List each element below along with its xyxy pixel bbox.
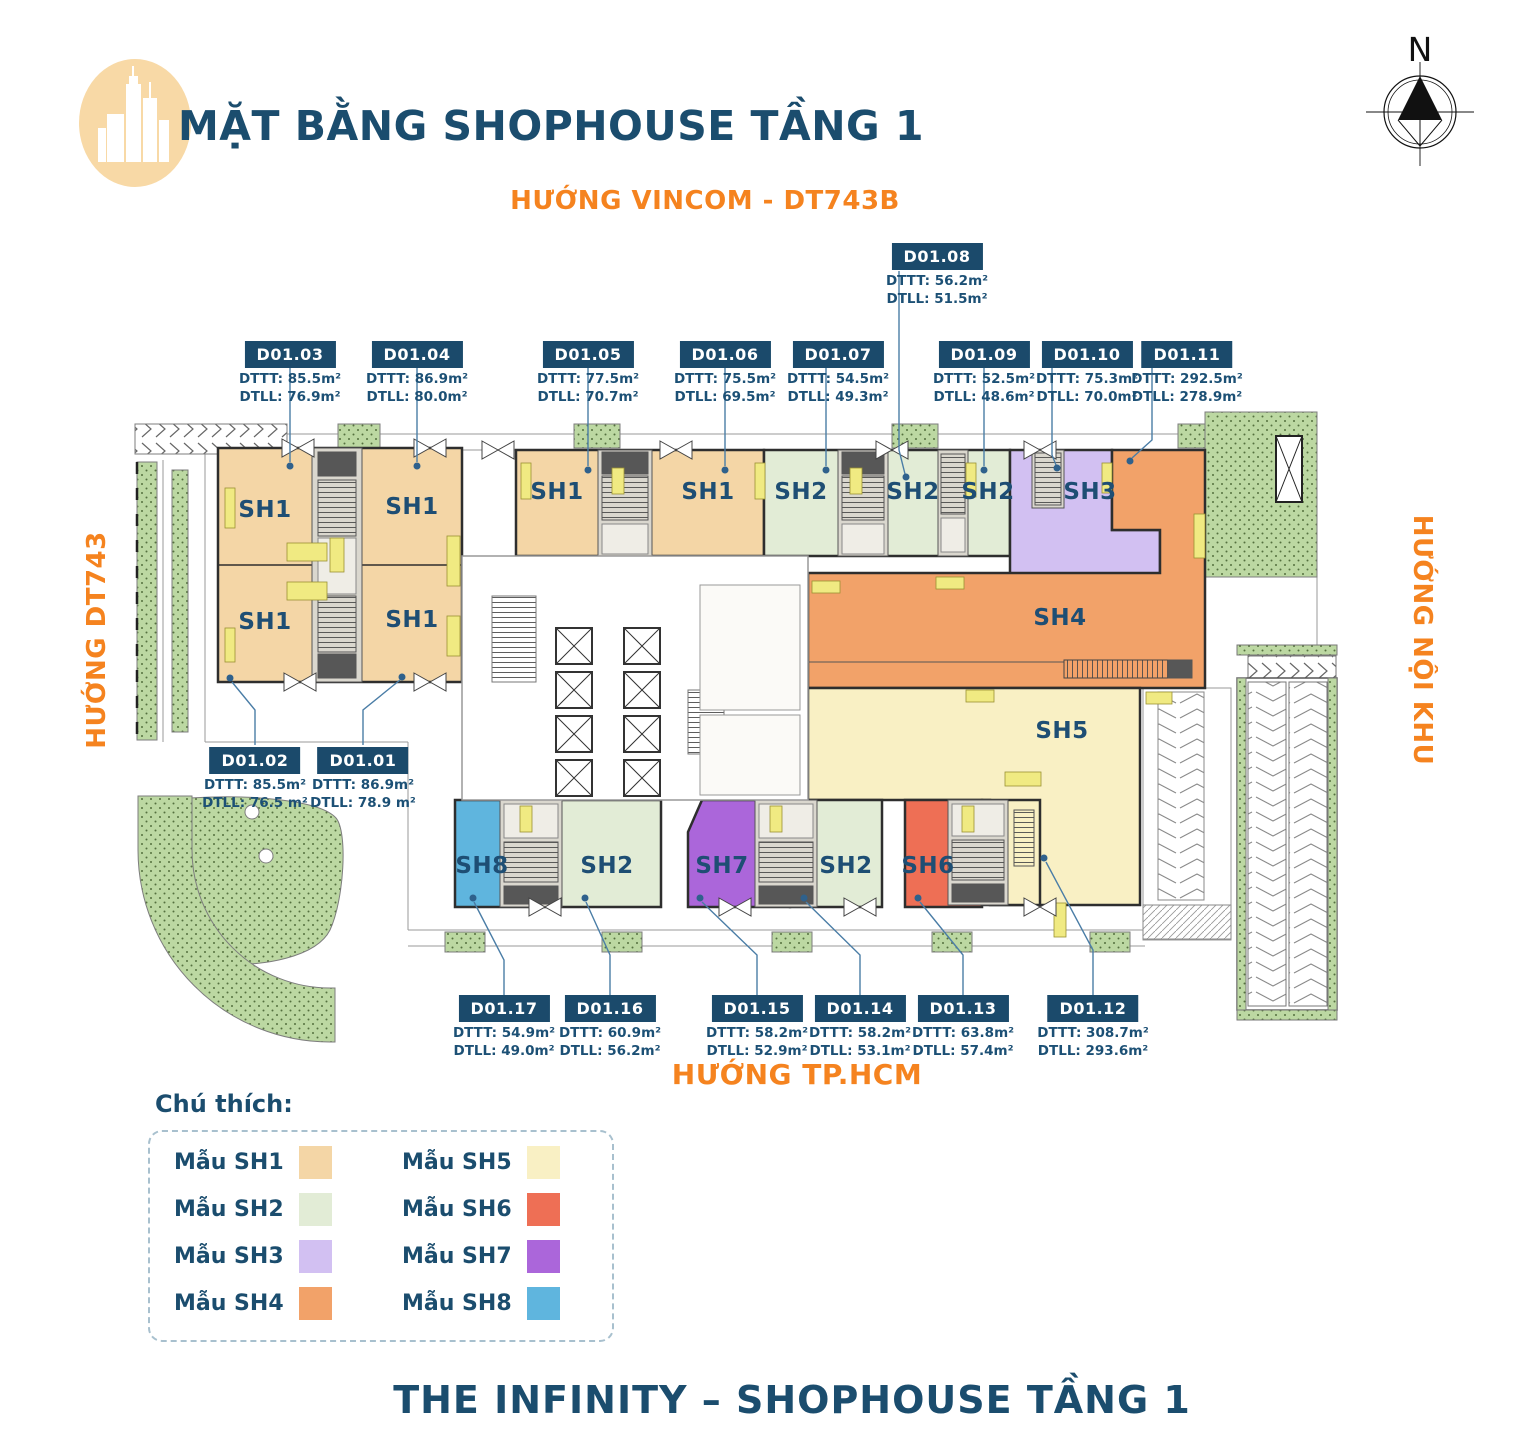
central-core xyxy=(462,556,808,800)
unit-areas: DTTT: 85.5m²DTLL: 76.9m² xyxy=(239,371,341,406)
unit-id-badge: D01.05 xyxy=(543,341,634,368)
plan-label-sh3: SH3 xyxy=(1063,479,1116,505)
unit-areas: DTTT: 56.2m²DTLL: 51.5m² xyxy=(886,273,988,308)
plan-label-sh8: SH8 xyxy=(455,853,508,879)
unit-tag-d01-07: D01.07 DTTT: 54.5m²DTLL: 49.3m² xyxy=(787,341,889,406)
unit-areas: DTTT: 86.9m²DTLL: 78.9 m² xyxy=(310,777,416,812)
legend-swatch-sh7 xyxy=(527,1240,560,1273)
legend-title: Chú thích: xyxy=(155,1090,293,1118)
compass-north-label: N xyxy=(1408,30,1433,69)
unit-tag-d01-10: D01.10 DTTT: 75.3m²DTLL: 70.0m² xyxy=(1036,341,1138,406)
logo-icon xyxy=(79,59,191,187)
plan-label-sh2: SH2 xyxy=(886,479,939,505)
plan-label-sh1: SH1 xyxy=(385,494,438,520)
unit-id-badge: D01.09 xyxy=(939,341,1030,368)
unit-id-badge: D01.14 xyxy=(815,995,906,1022)
unit-tag-d01-16: D01.16 DTTT: 60.9m²DTLL: 56.2m² xyxy=(559,995,661,1060)
plan-label-sh1: SH1 xyxy=(385,607,438,633)
unit-tag-d01-15: D01.15 DTTT: 58.2m²DTLL: 52.9m² xyxy=(706,995,808,1060)
unit-id-badge: D01.06 xyxy=(680,341,771,368)
unit-tag-d01-12: D01.12 DTTT: 308.7m²DTLL: 293.6m² xyxy=(1037,995,1149,1060)
legend-item-sh3: Mẫu SH3 xyxy=(174,1240,332,1273)
unit-id-badge: D01.03 xyxy=(245,341,336,368)
direction-label-left: HƯỚNG DT743 xyxy=(82,531,112,748)
legend-swatch-sh4 xyxy=(299,1287,332,1320)
legend-swatch-sh2 xyxy=(299,1193,332,1226)
unit-id-badge: D01.13 xyxy=(918,995,1009,1022)
unit-id-badge: D01.17 xyxy=(459,995,550,1022)
unit-id-badge: D01.10 xyxy=(1042,341,1133,368)
unit-tag-d01-13: D01.13 DTTT: 63.8m²DTLL: 57.4m² xyxy=(912,995,1014,1060)
unit-areas: DTTT: 63.8m²DTLL: 57.4m² xyxy=(912,1025,1014,1060)
unit-id-badge: D01.15 xyxy=(712,995,803,1022)
legend-item-sh2: Mẫu SH2 xyxy=(174,1193,332,1226)
unit-areas: DTTT: 86.9m²DTLL: 80.0m² xyxy=(366,371,468,406)
unit-areas: DTTT: 60.9m²DTLL: 56.2m² xyxy=(559,1025,661,1060)
unit-tag-d01-02: D01.02 DTTT: 85.5m²DTLL: 76.5 m² xyxy=(202,747,308,812)
unit-areas: DTTT: 58.2m²DTLL: 53.1m² xyxy=(809,1025,911,1060)
unit-tag-d01-11: D01.11 DTTT: 292.5m²DTLL: 278.9m² xyxy=(1131,341,1243,406)
legend-swatch-sh5 xyxy=(527,1146,560,1179)
unit-areas: DTTT: 308.7m²DTLL: 293.6m² xyxy=(1037,1025,1149,1060)
unit-id-badge: D01.11 xyxy=(1142,341,1233,368)
unit-areas: DTTT: 54.9m²DTLL: 49.0m² xyxy=(453,1025,555,1060)
legend-item-sh5: Mẫu SH5 xyxy=(402,1146,560,1179)
footer-title: THE INFINITY – SHOPHOUSE TẦNG 1 xyxy=(393,1378,1191,1422)
legend-item-sh8: Mẫu SH8 xyxy=(402,1287,560,1320)
unit-areas: DTTT: 77.5m²DTLL: 70.7m² xyxy=(537,371,639,406)
page-title: MẶT BẰNG SHOPHOUSE TẦNG 1 xyxy=(178,102,924,150)
unit-id-badge: D01.04 xyxy=(372,341,463,368)
plan-label-sh4: SH4 xyxy=(1033,605,1086,631)
unit-areas: DTTT: 52.5m²DTLL: 48.6m² xyxy=(933,371,1035,406)
direction-label-bottom: HƯỚNG TP.HCM xyxy=(672,1058,922,1091)
compass-icon xyxy=(1366,62,1474,166)
plan-label-sh1: SH1 xyxy=(238,609,291,635)
unit-areas: DTTT: 58.2m²DTLL: 52.9m² xyxy=(706,1025,808,1060)
plan-label-sh2: SH2 xyxy=(580,853,633,879)
legend-swatch-sh3 xyxy=(299,1240,332,1273)
legend-swatch-sh1 xyxy=(299,1146,332,1179)
plan-label-sh6: SH6 xyxy=(901,853,954,879)
plan-label-sh2: SH2 xyxy=(774,479,827,505)
unit-tag-d01-09: D01.09 DTTT: 52.5m²DTLL: 48.6m² xyxy=(933,341,1035,406)
unit-id-badge: D01.01 xyxy=(318,747,409,774)
unit-id-badge: D01.07 xyxy=(793,341,884,368)
plan-label-sh7: SH7 xyxy=(695,853,748,879)
legend-item-sh6: Mẫu SH6 xyxy=(402,1193,560,1226)
direction-label-top: HƯỚNG VINCOM - DT743B xyxy=(510,186,900,216)
legend-swatch-sh8 xyxy=(527,1287,560,1320)
plan-label-sh1: SH1 xyxy=(530,479,583,505)
unit-tag-d01-06: D01.06 DTTT: 75.5m²DTLL: 69.5m² xyxy=(674,341,776,406)
plan-label-sh1: SH1 xyxy=(238,497,291,523)
unit-id-badge: D01.02 xyxy=(210,747,301,774)
unit-tag-d01-08: D01.08 DTTT: 56.2m²DTLL: 51.5m² xyxy=(886,243,988,308)
legend-box: Mẫu SH1 Mẫu SH2 Mẫu SH3 Mẫu SH4 Mẫu SH5 … xyxy=(148,1130,614,1342)
unit-areas: DTTT: 54.5m²DTLL: 49.3m² xyxy=(787,371,889,406)
plan-label-sh1: SH1 xyxy=(681,479,734,505)
unit-id-badge: D01.16 xyxy=(565,995,656,1022)
plan-label-sh2: SH2 xyxy=(819,853,872,879)
unit-areas: DTTT: 292.5m²DTLL: 278.9m² xyxy=(1131,371,1243,406)
unit-areas: DTTT: 85.5m²DTLL: 76.5 m² xyxy=(202,777,308,812)
direction-label-right: HƯỚNG NỘI KHU xyxy=(1407,515,1437,765)
unit-tag-d01-05: D01.05 DTTT: 77.5m²DTLL: 70.7m² xyxy=(537,341,639,406)
plan-label-sh5: SH5 xyxy=(1035,718,1088,744)
legend-item-sh1: Mẫu SH1 xyxy=(174,1146,332,1179)
unit-id-badge: D01.08 xyxy=(892,243,983,270)
unit-tag-d01-04: D01.04 DTTT: 86.9m²DTLL: 80.0m² xyxy=(366,341,468,406)
unit-tag-d01-14: D01.14 DTTT: 58.2m²DTLL: 53.1m² xyxy=(809,995,911,1060)
side-corridor xyxy=(1143,688,1231,940)
legend-item-sh7: Mẫu SH7 xyxy=(402,1240,560,1273)
plan-label-sh2: SH2 xyxy=(961,479,1014,505)
unit-areas: DTTT: 75.3m²DTLL: 70.0m² xyxy=(1036,371,1138,406)
legend-swatch-sh6 xyxy=(527,1193,560,1226)
legend-item-sh4: Mẫu SH4 xyxy=(174,1287,332,1320)
parking-ramp xyxy=(1237,645,1337,1020)
unit-id-badge: D01.12 xyxy=(1048,995,1139,1022)
unit-tag-d01-03: D01.03 DTTT: 85.5m²DTLL: 76.9m² xyxy=(239,341,341,406)
unit-tag-d01-01: D01.01 DTTT: 86.9m²DTLL: 78.9 m² xyxy=(310,747,416,812)
unit-areas: DTTT: 75.5m²DTLL: 69.5m² xyxy=(674,371,776,406)
unit-tag-d01-17: D01.17 DTTT: 54.9m²DTLL: 49.0m² xyxy=(453,995,555,1060)
